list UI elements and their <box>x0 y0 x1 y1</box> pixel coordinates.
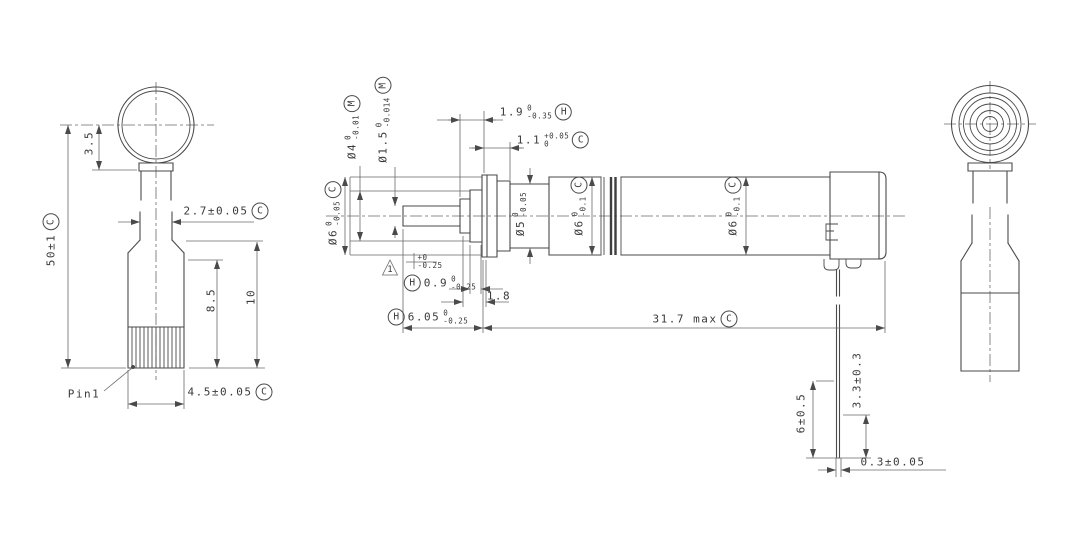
dia-6-front-callout: Ø6 0 -0.1 C <box>571 176 588 235</box>
dim-value: 31.7 max <box>653 313 718 326</box>
dia-5-callout: Ø5 0 -0.05 <box>512 192 528 236</box>
dia-6-rear-callout: Ø6 0 -0.1 C <box>725 176 742 235</box>
inspection-flag: C <box>325 181 342 198</box>
drawing-sheet: 3.5 50±1 C 2.7±0.05 C 8.5 10 4.5±0.05 C … <box>0 0 1076 560</box>
tolerance-stack: 0 -0.1 <box>725 196 741 216</box>
tol-lower: -0.1 <box>579 196 587 216</box>
dia-6-sleeve-callout: Ø6 0 -0.05 C <box>325 181 342 245</box>
tol-lower: -0.1 <box>733 196 741 216</box>
dim-value: Ø5 <box>514 220 527 236</box>
dim-1-8: 1.8 <box>487 290 511 303</box>
dim-lead-3-3: 3.3±0.3 <box>851 352 864 409</box>
dim-value: 0.9 <box>424 277 448 290</box>
tolerance-stack: 0 -0.01 <box>344 115 360 140</box>
tolerance-note: +0 -0.25 <box>417 254 442 270</box>
dim-value: 2.7±0.05 <box>184 205 249 218</box>
tolerance-stack: 0 -0.25 <box>443 309 468 325</box>
tolerance-stack: 0 -0.05 <box>325 201 341 226</box>
tolerance-stack: 0 -0.05 <box>512 192 528 217</box>
tolerance-stack: 0 -0.1 <box>571 196 587 216</box>
dim-value: Ø4 <box>346 143 359 159</box>
pin1-label: Pin1 <box>68 388 101 401</box>
dim-overall-50: 50±1 C <box>43 214 60 267</box>
dim-value: 6.05 <box>408 311 441 324</box>
inspection-flag: C <box>720 311 737 328</box>
left-view-dimensions <box>61 125 265 409</box>
dim-1-1: 1.1 +0.05 0 C <box>517 132 589 149</box>
dim-len-8-5: 8.5 <box>205 288 218 312</box>
inspection-flag: H <box>404 275 421 292</box>
triangle-flag-note: 1 <box>387 265 392 275</box>
tolerance-stack: 0 -0.014 <box>375 97 391 127</box>
tolerance-stack: 0 -0.25 <box>451 275 476 291</box>
inspection-flag: H <box>388 309 405 326</box>
dim-lead-0-3: 0.3±0.05 <box>861 456 926 469</box>
dim-0-9: H 0.9 0 -0.25 <box>404 275 476 292</box>
dia-1-5-callout: Ø1.5 0 -0.014 M <box>375 77 392 163</box>
triangle-flag-number: 1 <box>387 265 392 275</box>
inspection-flag: H <box>555 104 572 121</box>
dim-width-2-7: 2.7±0.05 C <box>184 203 269 220</box>
dia-4-callout: Ø4 0 -0.01 M <box>344 95 361 159</box>
tolerance-stack: +0.05 0 <box>544 132 569 148</box>
tol-lower: -0.014 <box>383 97 391 127</box>
dim-value: Ø6 <box>573 219 586 235</box>
dim-1-9: 1.9 0 -0.35 H <box>500 104 572 121</box>
inspection-flag: C <box>255 384 272 401</box>
dim-value: 1.8 <box>487 290 511 303</box>
dim-value: Ø1.5 <box>377 130 390 163</box>
dim-31-7-max: 31.7 max C <box>653 311 738 328</box>
inspection-flag: C <box>43 214 60 231</box>
tol-lower: -0.05 <box>333 201 341 226</box>
left-view-linework <box>60 82 214 391</box>
dim-6-05: H 6.05 0 -0.25 <box>388 309 469 326</box>
inspection-flag: C <box>251 203 268 220</box>
dim-value: 4.5±0.05 <box>188 386 253 399</box>
dim-value: 3.3±0.3 <box>851 352 864 409</box>
pin1-text: Pin1 <box>68 388 101 401</box>
tol-lower: -0.01 <box>352 115 360 140</box>
right-view-linework <box>944 81 1036 382</box>
tol-note-lower: -0.25 <box>417 262 442 270</box>
dim-width-4-5: 4.5±0.05 C <box>188 384 273 401</box>
inspection-flag: C <box>725 176 742 193</box>
dim-len-10: 10 <box>245 289 258 305</box>
dim-value: Ø6 <box>727 219 740 235</box>
dim-value: 1.1 <box>517 134 541 147</box>
tol-lower: -0.35 <box>527 112 552 120</box>
center-view-dimensions <box>345 111 946 477</box>
tol-lower: -0.25 <box>443 317 468 325</box>
tol-lower: 0 <box>544 140 569 148</box>
inspection-flag: C <box>572 132 589 149</box>
tol-lower: -0.25 <box>451 283 476 291</box>
tol-lower: -0.05 <box>520 192 528 217</box>
inspection-flag: M <box>375 77 392 94</box>
tolerance-stack: 0 -0.35 <box>527 104 552 120</box>
dim-lead-6: 6±0.5 <box>795 393 808 434</box>
dim-value: 0.3±0.05 <box>861 456 926 469</box>
dim-value: 1.9 <box>500 106 524 119</box>
dim-value: Ø6 <box>327 229 340 245</box>
dim-value: 50±1 <box>45 234 58 267</box>
dim-value: 6±0.5 <box>795 393 808 434</box>
dim-value: 3.5 <box>83 131 96 155</box>
dim-value: 10 <box>245 289 258 305</box>
dim-value: 8.5 <box>205 288 218 312</box>
dim-offset-3-5: 3.5 <box>83 131 96 155</box>
drawing-canvas <box>0 0 1076 560</box>
inspection-flag: C <box>571 176 588 193</box>
inspection-flag: M <box>344 95 361 112</box>
